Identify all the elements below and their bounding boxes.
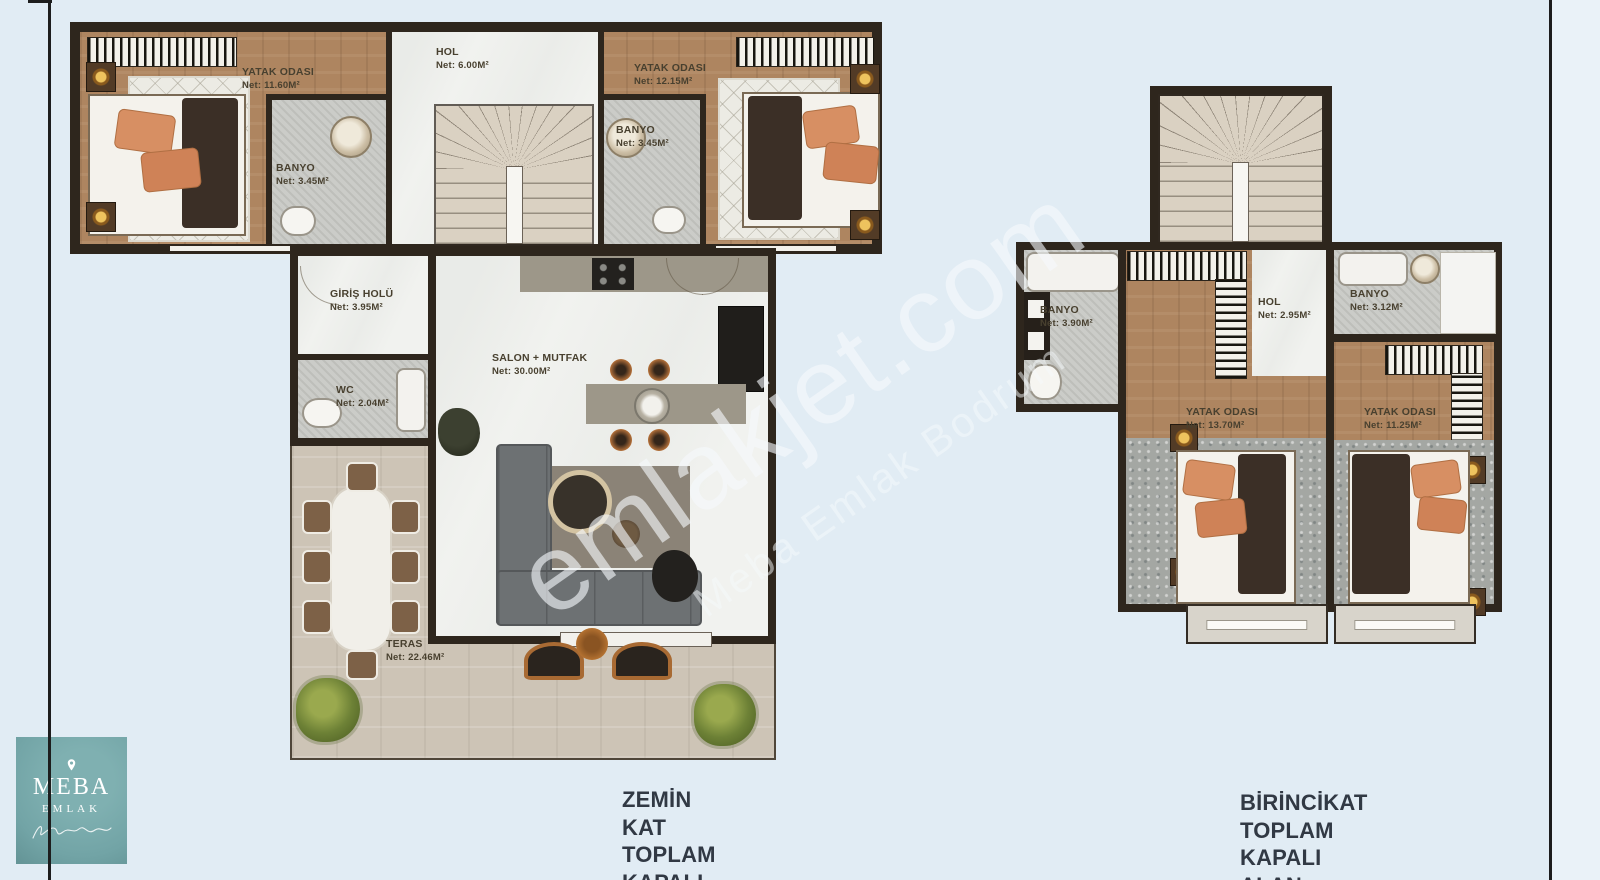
- lounge-chair: [524, 642, 584, 680]
- nightstand-lamp: [86, 62, 116, 92]
- frame-line-left: [48, 0, 51, 880]
- toilet: [280, 206, 316, 236]
- room-label-wc: WC Net: 2.04M²: [336, 384, 406, 410]
- room-name: YATAK ODASI: [1186, 406, 1258, 418]
- bed-pillow: [1416, 496, 1467, 535]
- bathroom-window-nook: [1440, 252, 1496, 334]
- room-label-bathroom1: BANYO Net: 3.45M²: [276, 162, 346, 188]
- floor-plan-image: YATAK ODASI Net: 11.60M² BANYO Net: 3.45…: [0, 0, 1600, 880]
- bar-stool: [648, 429, 670, 451]
- room-label-bathroom2: BANYO Net: 3.45M²: [616, 124, 686, 150]
- wardrobe-bedroom2: [737, 38, 874, 66]
- bathtub: [1338, 252, 1408, 286]
- stove-cooktop: [592, 258, 634, 290]
- bed-pillow: [113, 108, 176, 156]
- island-sink: [634, 388, 670, 424]
- room-area: Net: 11.60M²: [242, 80, 324, 92]
- stairs-divider: [506, 166, 523, 244]
- room-name: BANYO: [1040, 304, 1079, 316]
- room-name: YATAK ODASI: [242, 66, 314, 78]
- bar-stool: [610, 429, 632, 451]
- caption-floor-title: ZEMİN KAT: [622, 786, 716, 841]
- caption-floor-title: BİRİNCİKAT: [1240, 789, 1367, 817]
- room-name: WC: [336, 384, 354, 396]
- room-area: Net: 2.04M²: [336, 398, 406, 410]
- room-area: Net: 22.46M²: [386, 652, 476, 664]
- room-area: Net: 3.45M²: [616, 138, 686, 150]
- frame-line-right: [1549, 0, 1552, 880]
- frame-line-top: [28, 0, 52, 3]
- caption-total-area: TOPLAM KAPALI ALAN: 48.50M²: [1240, 817, 1367, 880]
- room-name: BANYO: [616, 124, 655, 136]
- room-label-hall: HOL Net: 6.00M²: [436, 46, 506, 72]
- window: [1354, 620, 1455, 630]
- room-area: Net: 2.95M²: [1258, 310, 1324, 322]
- dining-chair: [390, 500, 420, 534]
- window-bay: [1186, 604, 1328, 644]
- wall-divider: [386, 32, 392, 244]
- nightstand-lamp: [850, 64, 880, 94]
- lounge-chair: [612, 642, 672, 680]
- room-label-bedroom1: YATAK ODASI Net: 11.60M²: [242, 66, 324, 92]
- room-name: SALON + MUTFAK: [492, 352, 587, 364]
- room-name: YATAK ODASI: [634, 62, 706, 74]
- bed-pillow: [140, 147, 202, 193]
- room-label-terrace: TERAS Net: 22.46M²: [386, 638, 476, 664]
- window: [1206, 620, 1307, 630]
- lounge-table: [576, 628, 608, 660]
- room-label-entry-hall: GİRİŞ HOLÜ Net: 3.95M²: [330, 288, 420, 314]
- room-area: Net: 3.90M²: [1040, 318, 1112, 330]
- logo-brand-text: MEBA: [33, 774, 110, 801]
- location-pin-icon: [64, 758, 79, 773]
- dining-chair: [346, 650, 378, 680]
- bed-pillow: [1194, 497, 1247, 538]
- dining-chair: [302, 550, 332, 584]
- room-area: Net: 11.25M²: [1364, 420, 1450, 432]
- plant-pot: [438, 408, 480, 456]
- room-name: BANYO: [276, 162, 315, 174]
- room-name: YATAK ODASI: [1364, 406, 1436, 418]
- room-area: Net: 3.95M²: [330, 302, 420, 314]
- dining-table: [330, 486, 392, 652]
- coffee-table: [612, 520, 640, 548]
- nightstand-lamp: [86, 202, 116, 232]
- caption-total-area: TOPLAM KAPALI ALAN: 92.88M²: [622, 841, 716, 880]
- room-name: BANYO: [1350, 288, 1389, 300]
- room-area: Net: 12.15M²: [634, 76, 716, 88]
- wall-divider: [700, 94, 706, 244]
- room-name: HOL: [1258, 296, 1281, 308]
- room-area: Net: 6.00M²: [436, 60, 506, 72]
- room-name: HOL: [436, 46, 459, 58]
- dining-chair: [302, 600, 332, 634]
- bed-pillow: [822, 141, 880, 184]
- washbasin: [1410, 254, 1440, 284]
- room-label-bedroom-right: YATAK ODASI Net: 11.25M²: [1364, 406, 1450, 432]
- bed-blanket: [748, 96, 802, 220]
- staircase-ground: [436, 106, 592, 244]
- ground-floor-caption: ZEMİN KAT TOPLAM KAPALI ALAN: 92.88M² ZE…: [622, 786, 716, 880]
- dining-chair: [302, 500, 332, 534]
- round-armchair: [548, 470, 612, 534]
- wardrobe: [1216, 280, 1246, 378]
- agency-logo: MEBA EMLAK: [16, 737, 127, 864]
- room-label-bathroom-right: BANYO Net: 3.12M²: [1350, 288, 1422, 314]
- dining-chair: [390, 550, 420, 584]
- refrigerator: [718, 306, 764, 392]
- room-area: Net: 13.70M²: [1186, 420, 1272, 432]
- room-name: GİRİŞ HOLÜ: [330, 288, 393, 300]
- room-area: Net: 30.00M²: [492, 366, 612, 378]
- room-label-living: SALON + MUTFAK Net: 30.00M²: [492, 352, 612, 378]
- washbasin: [330, 116, 372, 158]
- window-bay: [1334, 604, 1476, 644]
- room-label-bedroom-left: YATAK ODASI Net: 13.70M²: [1186, 406, 1272, 432]
- bed-blanket: [1352, 454, 1410, 594]
- room-label-bathroom-left: BANYO Net: 3.90M²: [1040, 304, 1112, 330]
- nightstand-lamp: [850, 210, 880, 240]
- wardrobe: [1386, 346, 1482, 374]
- room-area: Net: 3.12M²: [1350, 302, 1422, 314]
- bar-stool: [610, 359, 632, 381]
- toilet: [652, 206, 686, 234]
- room-area: Net: 3.45M²: [276, 176, 346, 188]
- room-label-upper-hall: HOL Net: 2.95M²: [1258, 296, 1324, 322]
- beanbag: [652, 550, 698, 602]
- stairs-winder-steps: [436, 106, 592, 169]
- stairs-winder-steps: [1160, 96, 1322, 163]
- room-name: TERAS: [386, 638, 423, 650]
- room-label-bedroom2: YATAK ODASI Net: 12.15M²: [634, 62, 716, 88]
- bed-pillow: [1182, 459, 1237, 502]
- bathtub: [1026, 252, 1120, 292]
- bar-stool: [648, 359, 670, 381]
- right-background-strip: [1552, 0, 1600, 880]
- window: [170, 246, 290, 251]
- dining-chair: [346, 462, 378, 492]
- logo-signature: [29, 818, 115, 844]
- stairs-divider: [1232, 162, 1249, 242]
- wardrobe: [1128, 252, 1246, 280]
- dining-chair: [390, 600, 420, 634]
- first-floor-caption: BİRİNCİKAT TOPLAM KAPALI ALAN: 48.50M²: [1240, 789, 1367, 880]
- toilet: [1028, 364, 1062, 400]
- bed-pillow: [1410, 459, 1462, 499]
- staircase-first: [1160, 96, 1322, 242]
